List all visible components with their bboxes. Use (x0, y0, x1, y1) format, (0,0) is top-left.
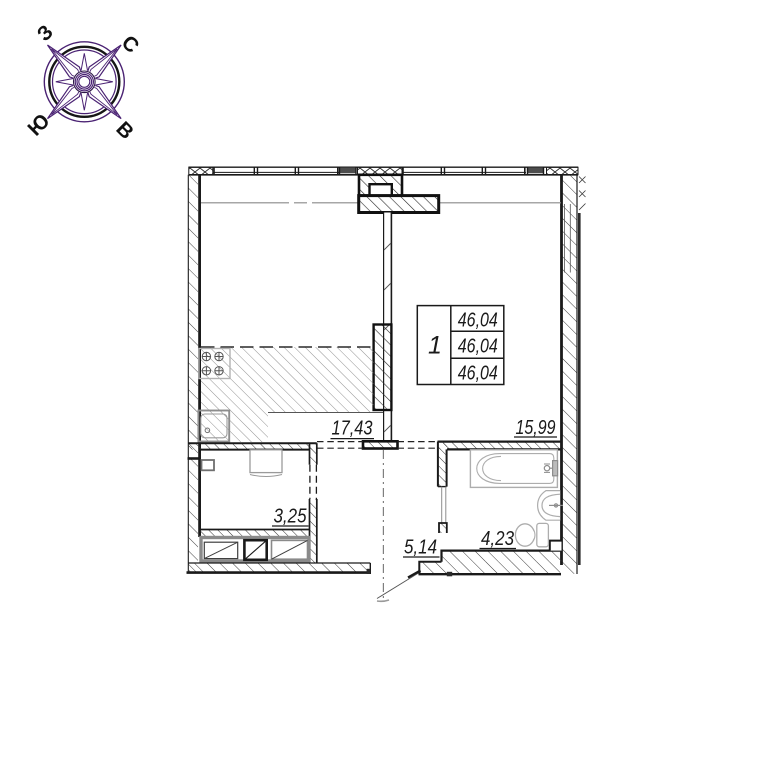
svg-text:5,14: 5,14 (404, 536, 437, 559)
svg-text:3,25: 3,25 (274, 505, 307, 528)
svg-text:46,04: 46,04 (458, 336, 498, 358)
svg-text:15,99: 15,99 (516, 416, 556, 439)
svg-text:46,04: 46,04 (458, 362, 498, 384)
svg-text:17,43: 17,43 (332, 417, 373, 440)
svg-text:46,04: 46,04 (458, 309, 498, 331)
svg-text:4,23: 4,23 (481, 527, 514, 550)
svg-text:1: 1 (428, 332, 442, 360)
